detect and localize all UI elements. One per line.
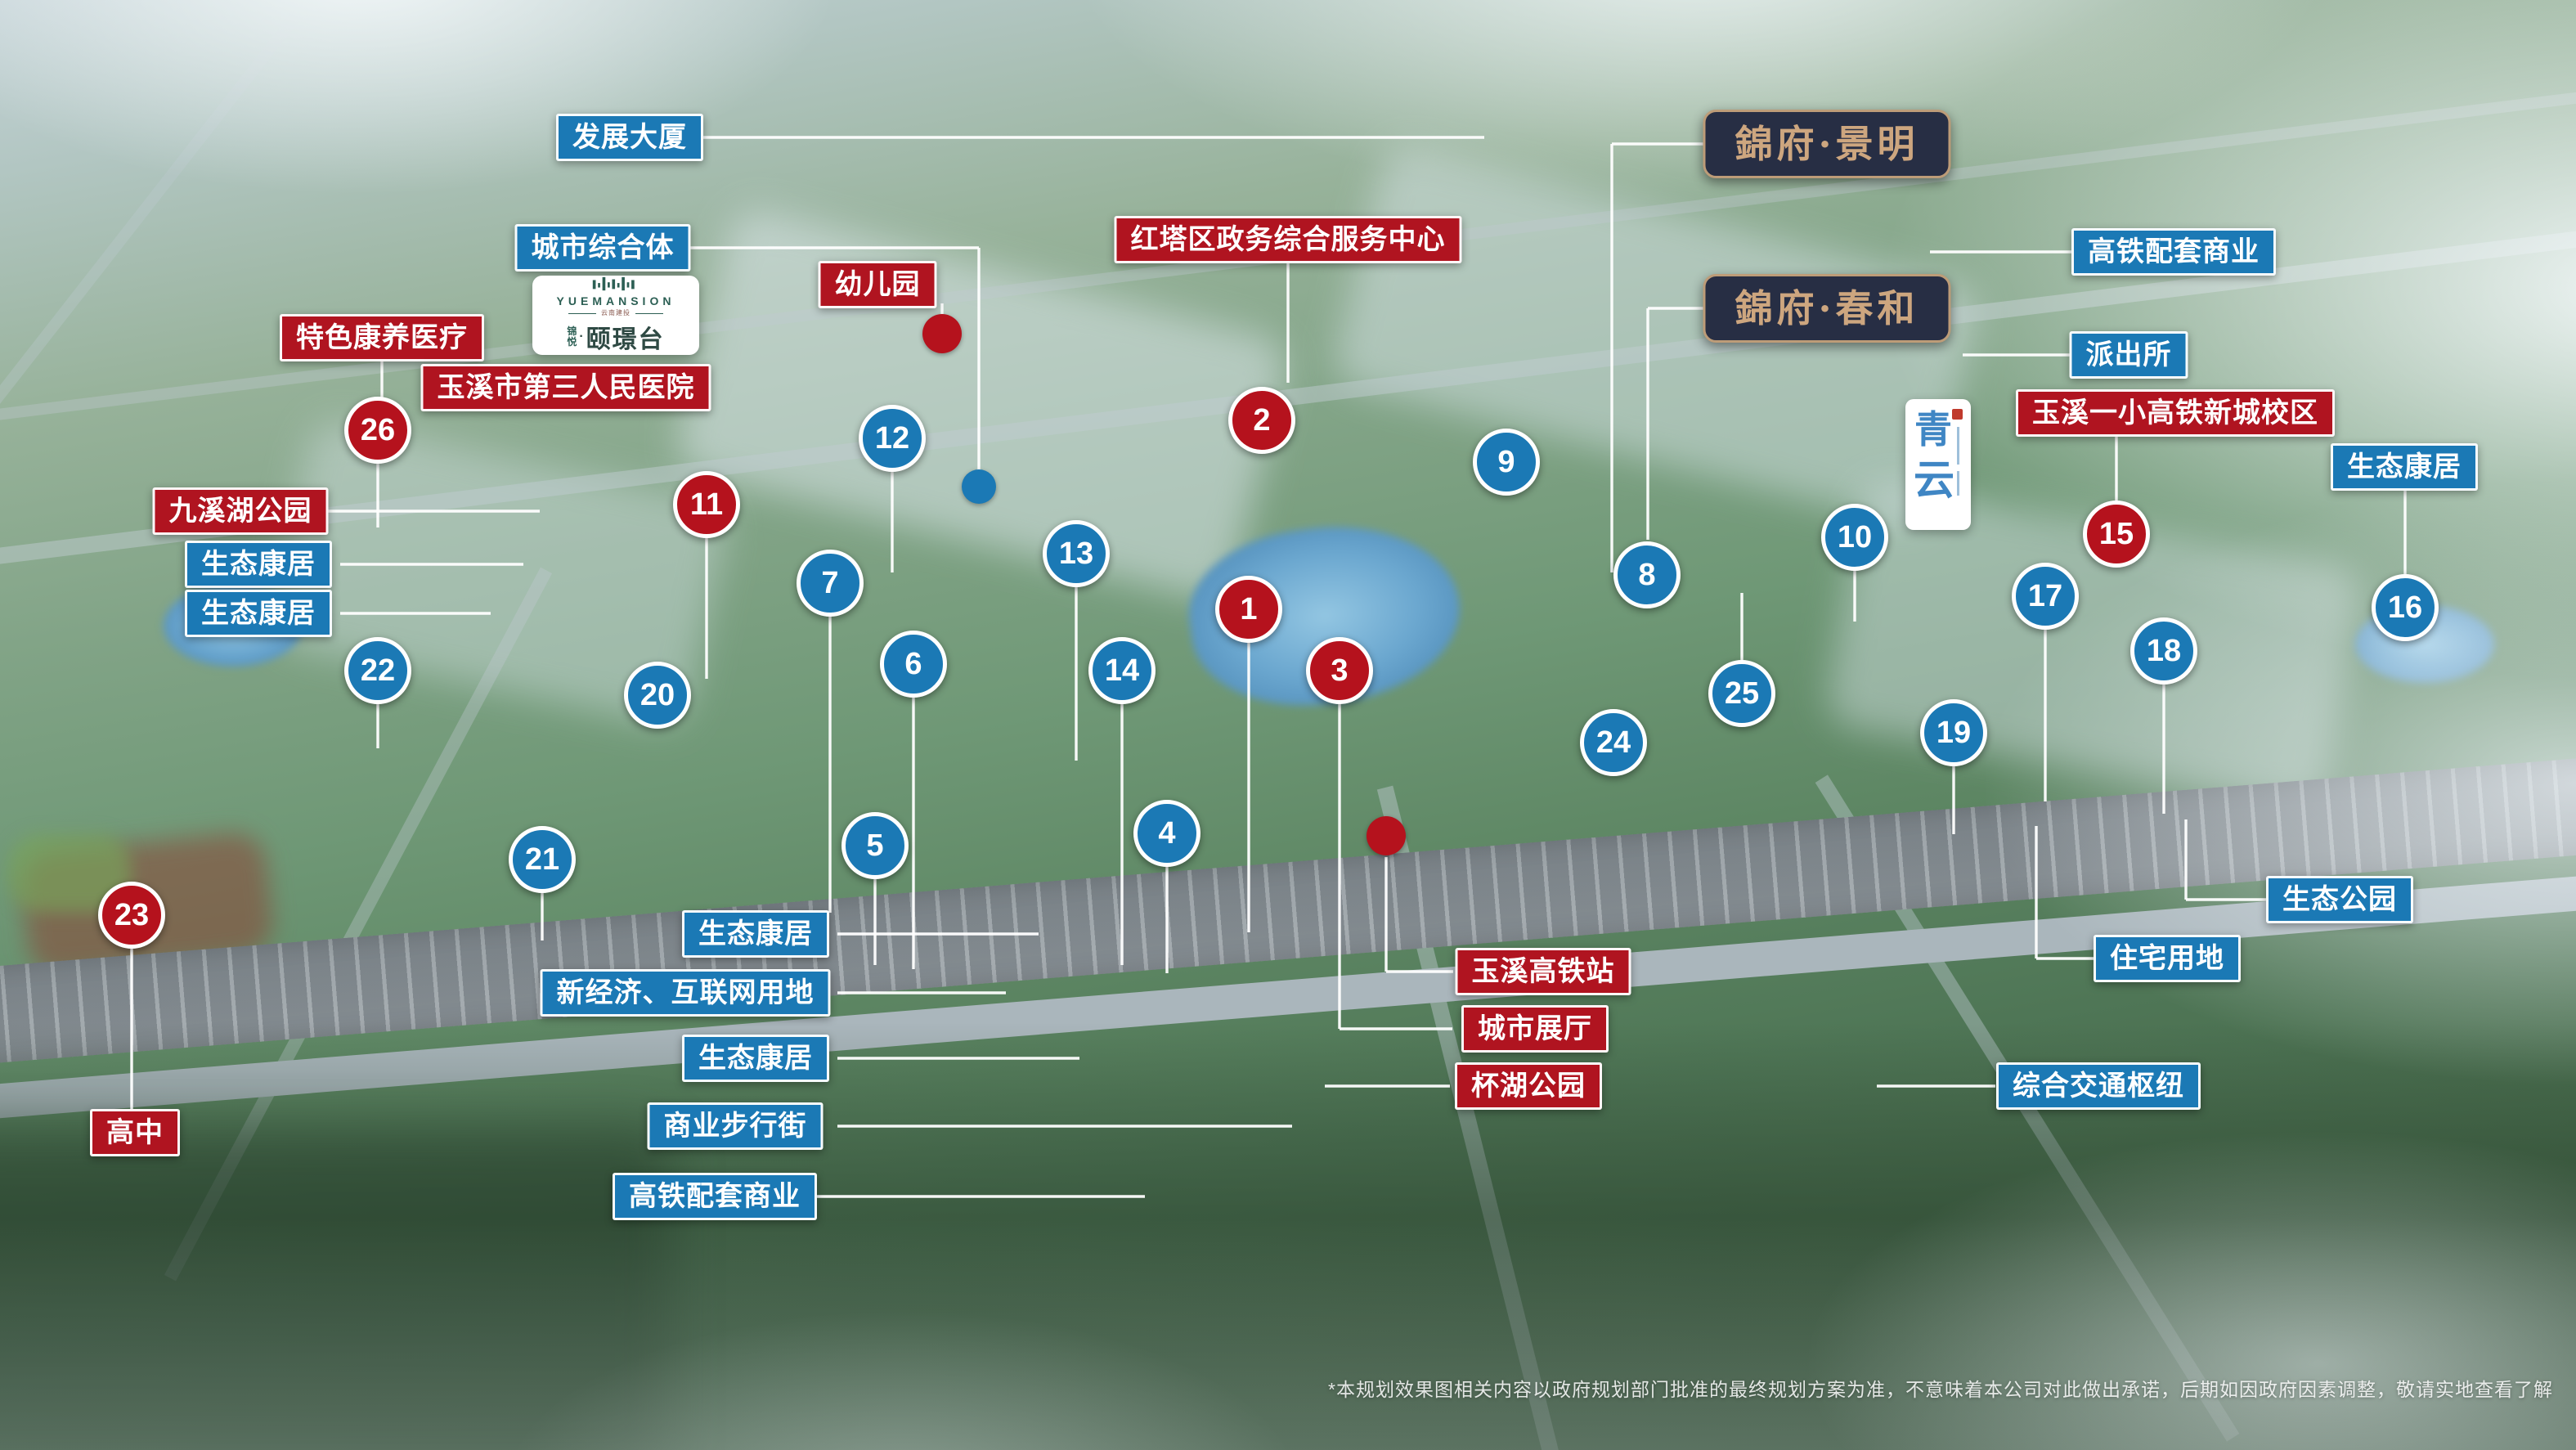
disclaimer-text: *本规划效果图相关内容以政府规划部门批准的最终规划方案为准，不意味着本公司对此做… [1328,1374,2553,1402]
marker-number: 18 [2147,634,2181,669]
marker-5: 5 [841,812,909,879]
marker-number: 7 [821,566,838,601]
label-beihu-park: 杯湖公园 [1455,1062,1602,1110]
marker-9: 9 [1473,429,1540,496]
marker-number: 9 [1497,445,1515,480]
yuemansion-sub-text: 云南建投 [568,310,663,316]
label-eco-park: 生态公园 [2266,876,2413,923]
marker-number: 12 [875,421,909,456]
marker-number: 23 [114,898,149,933]
marker-16: 16 [2372,574,2439,641]
yuemansion-brand-cn: 锦 悦 · 颐璟台 [567,319,664,355]
marker-number: 2 [1253,403,1270,438]
marker-number: 17 [2028,579,2062,614]
label-eco-residence-s2: 生态康居 [682,1035,829,1082]
label-jinfu-jingming: 錦府·景明 [1703,110,1950,178]
marker-number: 19 [1936,716,1971,751]
marker-13: 13 [1043,520,1110,587]
qingyun-side-text-strip [1957,471,1959,496]
marker-number: 21 [525,842,559,878]
label-kindergarten: 幼儿园 [819,261,937,308]
label-high-school: 高中 [90,1109,180,1156]
marker-number: 22 [361,653,395,689]
marker-10: 10 [1821,504,1888,571]
urban-complex-dot [962,469,996,504]
yuemansion-building-icon [590,276,642,292]
marker-number: 15 [2099,517,2134,552]
label-residential-land: 住宅用地 [2094,935,2241,982]
marker-12: 12 [859,405,926,472]
marker-15: 15 [2083,501,2150,568]
marker-8: 8 [1613,541,1681,608]
label-hsr-commercial-ne: 高铁配套商业 [2071,228,2276,276]
label-jiuxi-lake-park: 九溪湖公园 [153,487,329,535]
qingyun-char-bottom: 云 [1914,460,1953,501]
label-eco-residence-w2: 生态康居 [185,590,332,637]
label-eco-residence-s1: 生态康居 [682,910,829,958]
marker-number: 4 [1158,816,1175,851]
yuemansion-separator: · [579,330,583,344]
label-yuxi-hsr-station: 玉溪高铁站 [1456,948,1631,995]
marker-11: 11 [673,471,740,538]
marker-number: 13 [1059,536,1093,572]
label-hongta-gov-center: 红塔区政务综合服务中心 [1115,216,1462,263]
marker-20: 20 [624,662,691,729]
marker-number: 8 [1638,558,1655,593]
marker-number: 24 [1596,725,1631,761]
label-eco-residence-e: 生态康居 [2331,443,2478,491]
label-eco-residence-w1: 生态康居 [185,541,332,588]
marker-26: 26 [344,397,411,464]
marker-number: 1 [1240,592,1257,627]
marker-25: 25 [1708,660,1775,727]
marker-number: 3 [1331,653,1348,689]
marker-6: 6 [880,631,947,698]
marker-3: 3 [1306,637,1373,704]
label-health-care-medical: 特色康养医疗 [280,314,484,361]
marker-18: 18 [2130,617,2197,685]
label-hsr-commercial-s: 高铁配套商业 [613,1173,817,1220]
label-development-building: 发展大厦 [556,114,703,161]
marker-number: 11 [690,487,723,523]
label-city-exhibition-hall: 城市展厅 [1461,1005,1609,1053]
marker-23: 23 [98,882,165,949]
yuemansion-prefix: 锦 悦 [567,326,577,347]
yuemansion-name: 颐璟台 [586,319,665,355]
marker-2: 2 [1228,387,1295,454]
label-jinfu-chunhe: 錦府·春和 [1703,274,1950,343]
marker-number: 5 [866,828,883,864]
label-yuxi-no1-primary: 玉溪一小高铁新城校区 [2016,389,2335,437]
marker-7: 7 [797,550,864,617]
marker-number: 16 [2388,590,2422,626]
qingyun-logo-card: 青 云 [1905,399,1971,530]
marker-number: 25 [1725,676,1759,712]
qingyun-seal-icon [1952,409,1963,420]
kindergarten-dot [922,314,962,353]
marker-22: 22 [344,637,411,704]
label-police-station: 派出所 [2070,331,2188,379]
label-third-peoples-hospital: 玉溪市第三人民医院 [421,364,711,411]
label-transport-hub: 综合交通枢纽 [1996,1062,2201,1110]
marker-number: 10 [1838,520,1872,555]
hsr-station-dot [1367,816,1406,855]
yuemansion-logo-card: YUEMANSION 云南建投 锦 悦 · 颐璟台 [532,276,699,355]
qingyun-char-top: 青 [1914,411,1953,448]
yuemansion-brand-en: YUEMANSION [557,294,675,308]
label-urban-complex: 城市综合体 [515,224,691,272]
marker-19: 19 [1920,699,1987,766]
label-new-economy-internet: 新经济、互联网用地 [541,969,831,1017]
marker-17: 17 [2012,563,2079,630]
marker-24: 24 [1580,709,1647,776]
marker-4: 4 [1133,800,1200,867]
marker-number: 14 [1105,653,1139,689]
marker-21: 21 [509,826,576,893]
qingyun-side-text-strip [1957,427,1959,465]
label-pedestrian-street: 商业步行街 [648,1102,824,1150]
masterplan-aerial-map: 发展大厦城市综合体幼儿园红塔区政务综合服务中心錦府·景明錦府·春和高铁配套商业派… [0,0,2576,1450]
marker-1: 1 [1215,576,1282,643]
marker-14: 14 [1088,637,1156,704]
marker-number: 6 [904,647,922,682]
marker-number: 26 [361,413,395,448]
marker-number: 20 [640,678,675,713]
